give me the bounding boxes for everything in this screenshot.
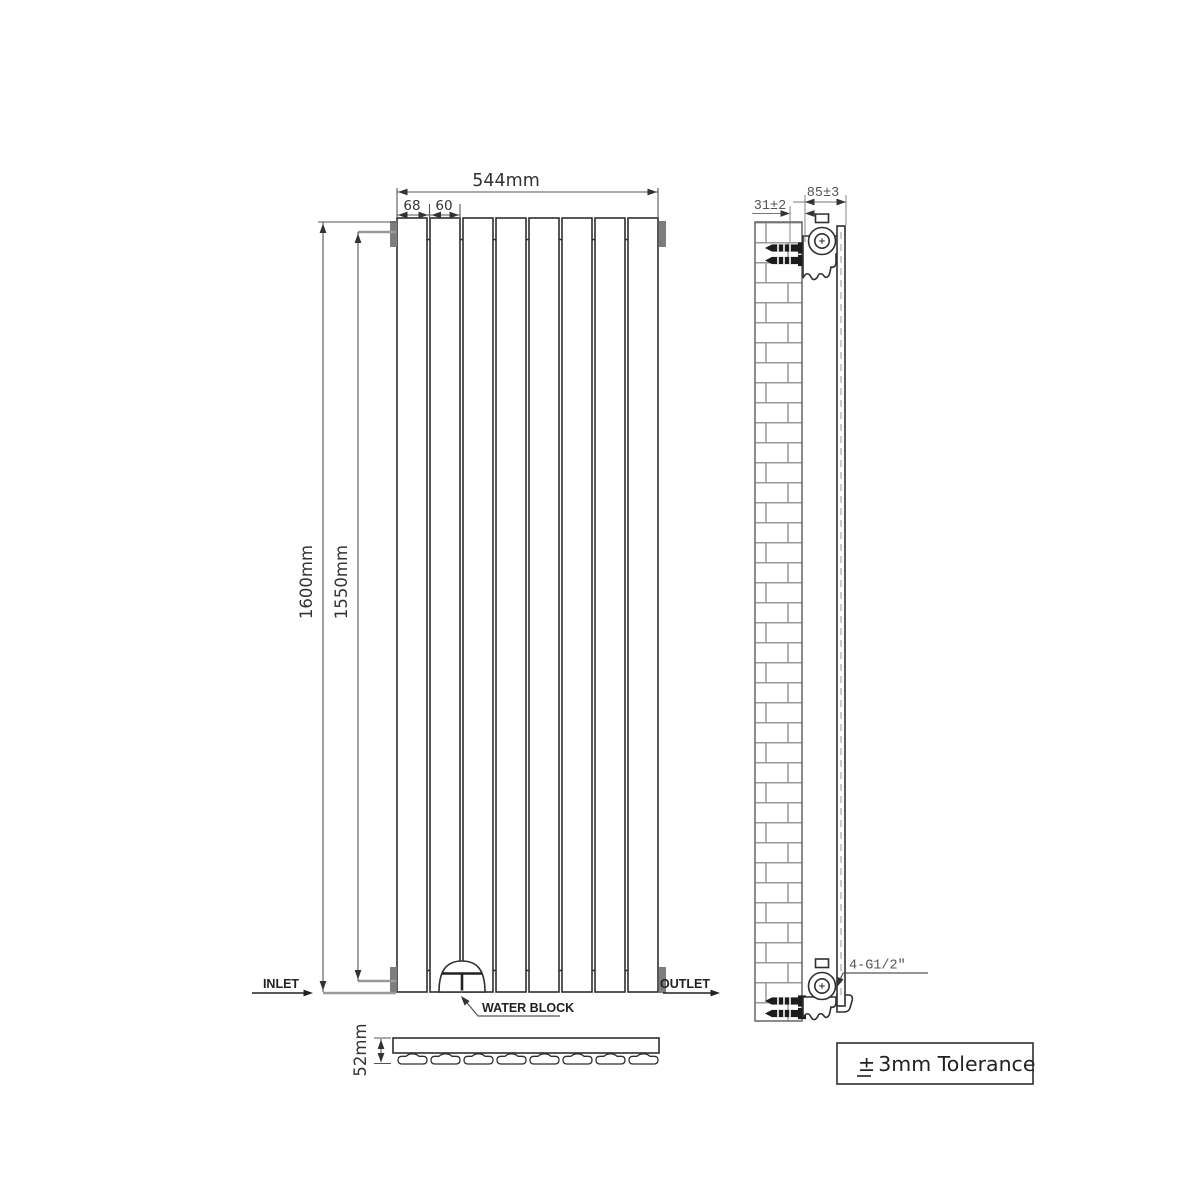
height-dimension-label: 1600mm — [297, 545, 316, 619]
section-tube — [398, 1054, 427, 1064]
water-block-annotation: WATER BLOCK — [458, 994, 574, 1016]
radiator-technical-drawing: 544mm 68 60 1600mm — [0, 0, 1200, 1200]
section-tube — [629, 1054, 658, 1064]
radiator-panel — [463, 218, 493, 992]
inlet-label: INLET — [263, 977, 299, 991]
depth-dimension-label: 52mm — [351, 1023, 370, 1076]
outlet-annotation: OUTLET — [660, 977, 720, 996]
section-tube — [530, 1054, 559, 1064]
section-tube — [497, 1054, 526, 1064]
bracket-knob — [809, 214, 836, 255]
radiator-panel — [628, 218, 658, 992]
connection-annotation: 4-G1/2" — [834, 959, 928, 989]
pitch-dimension: 68 60 — [397, 198, 460, 219]
front-view: 544mm 68 60 1600mm — [252, 171, 720, 1016]
section-tube — [464, 1054, 493, 1064]
wall — [755, 222, 802, 1021]
depth-dimension: 52mm — [351, 1023, 391, 1076]
side-view: 85±3 31±2 4-G1/2" — [752, 186, 928, 1021]
section-tube — [563, 1054, 592, 1064]
tolerance-note: ±3mm Tolerance — [837, 1043, 1035, 1084]
radiator-panel — [496, 218, 526, 992]
mounting-tab-top-right — [659, 221, 666, 247]
water-block-label: WATER BLOCK — [482, 1001, 574, 1015]
mounting-tab-top-left — [390, 221, 397, 247]
inner-height-dimension: 1550mm — [332, 232, 396, 981]
tolerance-value: 3mm Tolerance — [878, 1052, 1035, 1076]
section-tube — [596, 1054, 625, 1064]
width-dimension-label: 544mm — [472, 171, 540, 191]
bracket-arm — [803, 997, 836, 1020]
radiator-panel — [562, 218, 592, 992]
tolerance-text: ±3mm Tolerance — [858, 1052, 1035, 1076]
section-tubes — [398, 1054, 658, 1064]
radiator-panel — [397, 218, 427, 992]
radiator-panel — [430, 218, 460, 992]
radiator-panel — [529, 218, 559, 992]
wall-distance-label: 85±3 — [807, 186, 839, 201]
panel-width-label: 60 — [435, 198, 452, 214]
bracket-knob — [809, 959, 836, 1000]
drawing-canvas: 544mm 68 60 1600mm — [0, 0, 1200, 1200]
connection-label: 4-G1/2" — [849, 959, 906, 974]
outlet-label: OUTLET — [660, 977, 710, 991]
pitch-label: 68 — [403, 198, 420, 214]
tolerance-symbol: ± — [858, 1052, 875, 1076]
inner-height-dimension-label: 1550mm — [332, 545, 351, 619]
radiator-panels — [397, 218, 658, 992]
inlet-annotation: INLET — [252, 977, 313, 996]
radiator-panel — [595, 218, 625, 992]
section-tube — [431, 1054, 460, 1064]
wall-fixing-label: 31±2 — [754, 199, 786, 214]
section-panel — [393, 1038, 659, 1053]
bottom-section-view: 52mm — [351, 1023, 659, 1076]
